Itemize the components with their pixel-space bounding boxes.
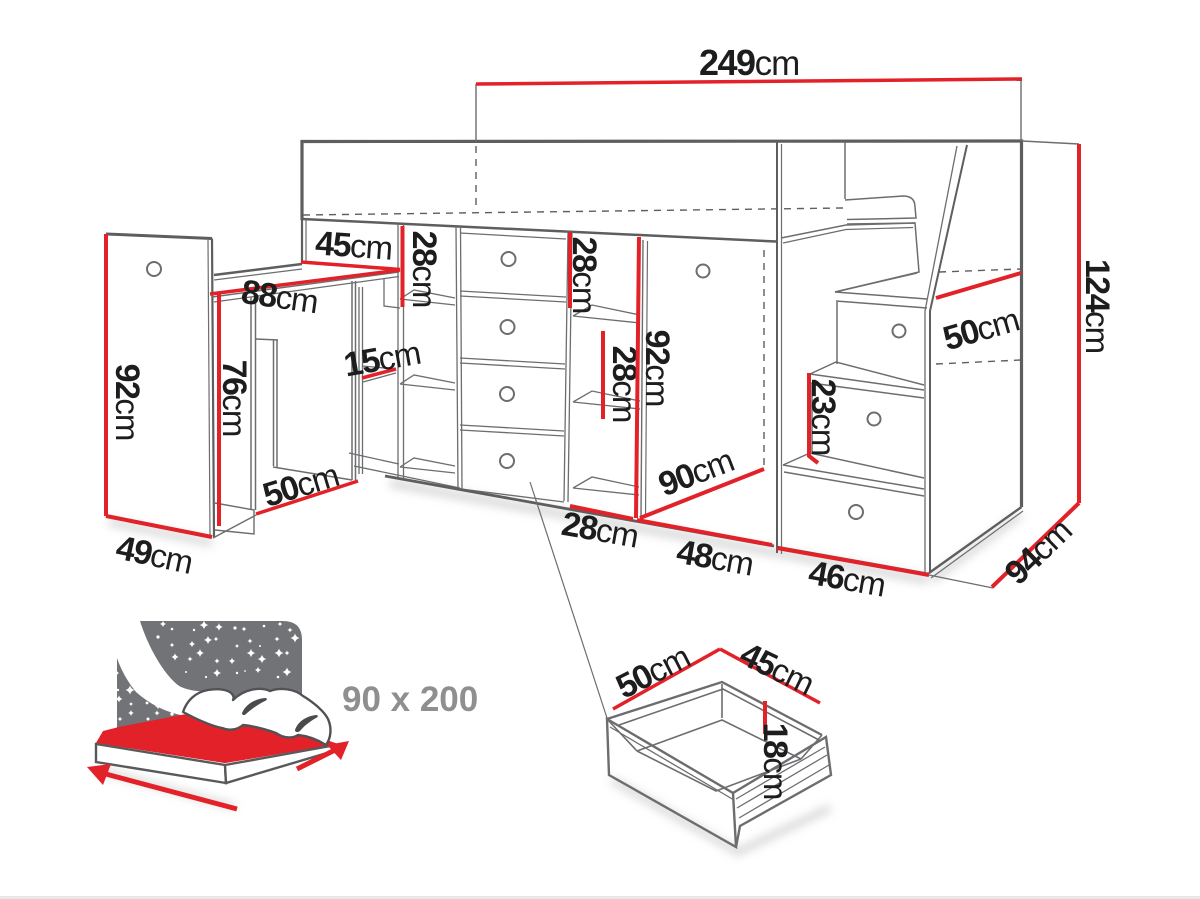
svg-text:92cm: 92cm <box>638 330 676 407</box>
svg-text:249cm: 249cm <box>699 42 799 83</box>
svg-text:76cm: 76cm <box>215 360 253 437</box>
svg-text:18cm: 18cm <box>756 723 794 800</box>
svg-text:92cm: 92cm <box>108 364 146 441</box>
svg-text:23cm: 23cm <box>804 379 842 456</box>
svg-text:124cm: 124cm <box>1078 259 1116 353</box>
svg-text:28cm: 28cm <box>565 237 603 314</box>
svg-text:90 x 200: 90 x 200 <box>342 680 478 719</box>
svg-text:45cm: 45cm <box>314 224 393 267</box>
svg-text:28cm: 28cm <box>405 231 443 308</box>
